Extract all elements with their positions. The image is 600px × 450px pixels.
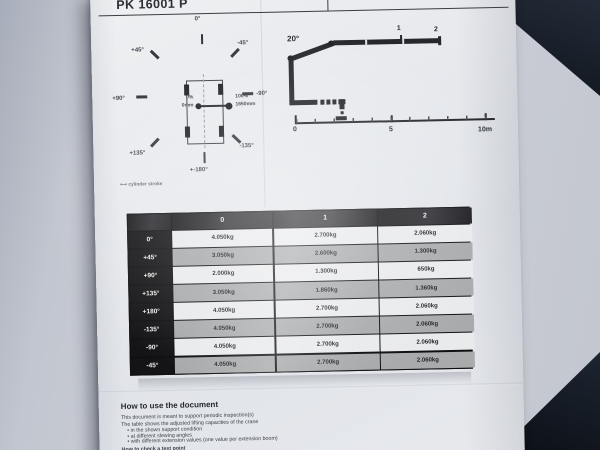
angle-tick <box>150 138 159 148</box>
paper-sheet: PK 16001 P 0° +45° -45° +90° -90° +135° … <box>90 0 525 450</box>
base-dash <box>332 99 336 104</box>
row-angle: -45° <box>131 357 174 375</box>
angle-label-plus90: +90° <box>112 96 125 102</box>
angle-label-minus90: -90° <box>256 91 267 97</box>
row-angle: +45° <box>128 249 171 267</box>
truck-wheel <box>219 126 224 137</box>
capacity-cell: 2.700kg <box>276 353 379 372</box>
crane-base <box>289 100 317 106</box>
truck-wheel <box>185 126 190 137</box>
capacity-cell: 4.050kg <box>174 301 274 320</box>
howto-footer: How to check a test point <box>122 446 186 450</box>
capacity-cell: 2.060kg <box>380 297 474 316</box>
stabilizer-left-mm: 0mm <box>169 102 193 109</box>
capacity-cell: 2.700kg <box>276 317 379 336</box>
angle-tick <box>232 134 242 143</box>
capacity-cell: 2.060kg <box>380 315 474 334</box>
angle-label-180: +-180° <box>190 167 208 173</box>
truck-wheel <box>218 84 223 95</box>
angle-tick <box>203 152 206 163</box>
extension-2-label: 2 <box>434 26 438 33</box>
column-header-1: 1 <box>273 210 376 228</box>
angle-tick <box>200 34 203 44</box>
scale-label-10m: 10m <box>478 126 492 133</box>
extension-1-label: 1 <box>397 25 401 32</box>
capacity-cell: 2.700kg <box>274 227 377 246</box>
angle-label-0: 0° <box>195 16 201 22</box>
capacity-cell: 2.700kg <box>276 335 379 354</box>
capacity-table: 0 1 2 0° 4.050kg 2.700kg 2.060kg +45° 3.… <box>127 207 473 376</box>
row-angle: +180° <box>130 303 173 321</box>
boom-section-gap <box>365 40 367 45</box>
capacity-cell: 2.060kg <box>381 351 475 370</box>
row-angle: +90° <box>129 267 172 285</box>
angle-label-minus45: -45° <box>237 40 248 46</box>
base-dash <box>320 100 324 105</box>
row-angle: -90° <box>130 339 173 357</box>
row-angle: +135° <box>129 285 172 303</box>
howto-title: How to use the document <box>121 400 219 411</box>
angle-label-plus135: +135° <box>129 150 145 156</box>
crane-mast <box>289 60 295 102</box>
angle-tick <box>136 95 147 98</box>
base-dash <box>326 99 330 104</box>
angle-label-minus135: -135° <box>239 143 254 149</box>
angle-label-plus45: +45° <box>131 47 144 53</box>
capacity-cell: 4.050kg <box>172 229 272 248</box>
outrigger-dot <box>341 111 344 114</box>
angle-tick <box>150 50 160 59</box>
boom-section-gap <box>402 39 404 44</box>
boom-end-cap <box>438 36 441 46</box>
scale-label-0: 0 <box>293 126 297 133</box>
extension-1-tick <box>400 35 402 44</box>
capacity-cell: 3.050kg <box>173 247 273 266</box>
row-angle: 0° <box>128 231 171 249</box>
column-header-2: 2 <box>378 208 472 226</box>
capacity-cell: 1.300kg <box>275 263 378 282</box>
cylinder-stroke-legend: ⟷ cylinder stroke <box>120 182 162 188</box>
capacity-cell: 2.000kg <box>173 265 273 284</box>
double-arrow-icon: ⟷ <box>120 183 127 188</box>
photo-of-crane-load-chart: PK 16001 P 0° +45° -45° +90° -90° +135° … <box>0 0 600 450</box>
capacity-cell: 1.360kg <box>379 279 473 298</box>
extension-boom <box>333 38 440 45</box>
stabilizer-dot-0 <box>195 103 201 109</box>
outrigger-leg <box>339 99 344 109</box>
stabilizer-left-pct: 0% <box>173 94 193 100</box>
scale-label-5: 5 <box>389 126 393 133</box>
capacity-cell: 3.050kg <box>174 283 274 302</box>
paper-crease-vertical <box>260 0 267 207</box>
capacity-cell: 1.300kg <box>379 243 473 262</box>
capacity-cell: 2.700kg <box>275 299 378 318</box>
row-angle: -135° <box>130 321 173 339</box>
table-corner-cell <box>128 214 171 230</box>
capacity-cell: 4.050kg <box>174 319 274 338</box>
stabilizer-right-pct: 100% <box>235 93 248 99</box>
capacity-cell: 1.860kg <box>275 281 378 300</box>
angle-tick <box>230 48 239 58</box>
boom-angle-label: 20° <box>287 34 299 43</box>
document-title: PK 16001 P <box>116 0 188 12</box>
capacity-cell: 2.600kg <box>274 245 377 264</box>
capacity-cell: 4.050kg <box>175 337 275 356</box>
column-header-0: 0 <box>172 212 272 230</box>
header-divider <box>327 0 329 11</box>
capacity-cell: 650kg <box>379 261 473 280</box>
capacity-cell: 2.060kg <box>380 333 474 352</box>
stabilizer-right-mm: 1650mm <box>235 101 255 107</box>
stabilizer-dot-100 <box>225 102 232 109</box>
capacity-cell: 2.060kg <box>378 225 472 244</box>
capacity-cell: 4.050kg <box>175 355 275 374</box>
